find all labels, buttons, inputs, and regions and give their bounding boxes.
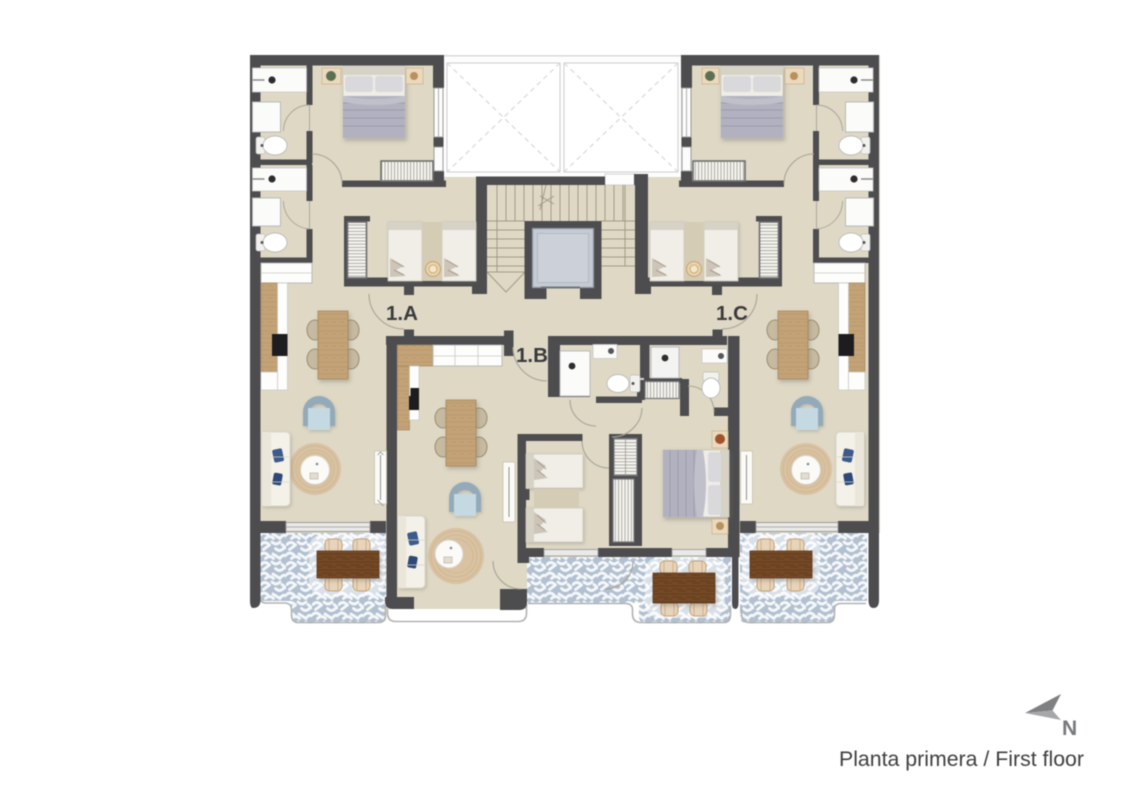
svg-text:N: N bbox=[1062, 717, 1077, 740]
svg-text:1.A: 1.A bbox=[386, 302, 418, 325]
svg-text:1.B: 1.B bbox=[516, 344, 548, 367]
svg-text:Planta primera / First floor: Planta primera / First floor bbox=[839, 747, 1084, 771]
svg-text:1.C: 1.C bbox=[716, 302, 748, 325]
